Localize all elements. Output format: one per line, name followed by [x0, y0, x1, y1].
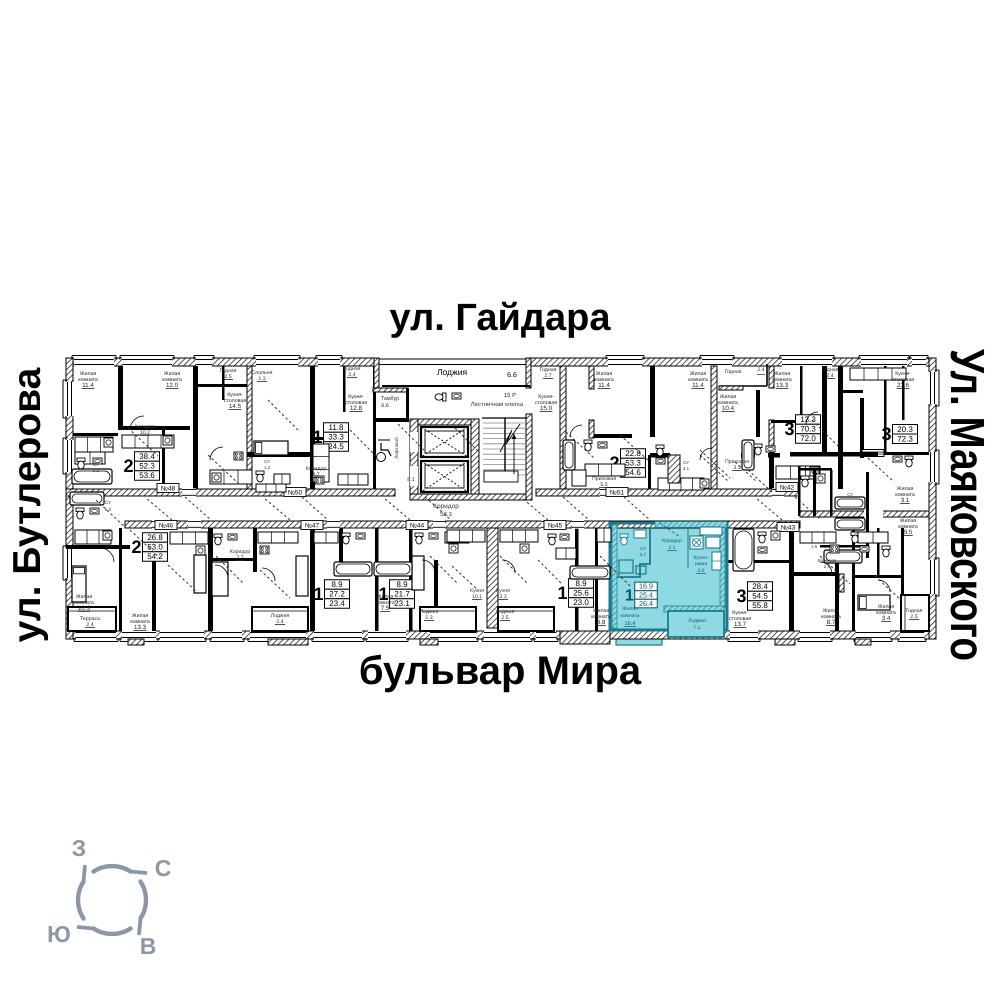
svg-text:25.6: 25.6	[573, 589, 589, 598]
svg-text:Ул. Маяковского: Ул. Маяковского	[940, 349, 993, 661]
svg-text:СУ: СУ	[640, 546, 646, 551]
svg-text:21.6: 21.6	[897, 382, 910, 389]
svg-text:№47: №47	[305, 523, 320, 530]
svg-text:38.4: 38.4	[139, 452, 155, 461]
svg-text:Лестничная клетка: Лестничная клетка	[471, 401, 524, 408]
svg-text:2.1: 2.1	[669, 545, 676, 551]
svg-text:3.0: 3.0	[698, 568, 705, 574]
svg-text:Лифтовой: Лифтовой	[394, 437, 399, 459]
svg-text:СУ: СУ	[105, 500, 111, 505]
svg-text:6.6: 6.6	[507, 372, 517, 379]
svg-text:26.4: 26.4	[639, 599, 653, 608]
svg-text:3.1: 3.1	[901, 497, 910, 504]
svg-text:2.4: 2.4	[757, 367, 764, 373]
svg-text:13.3: 13.3	[134, 624, 147, 631]
svg-text:10.3: 10.3	[78, 605, 91, 612]
svg-text:1: 1	[625, 586, 634, 604]
svg-text:8.9: 8.9	[331, 580, 343, 589]
svg-text:53.3: 53.3	[625, 459, 641, 468]
svg-text:1: 1	[557, 583, 567, 603]
svg-text:11.8: 11.8	[329, 423, 345, 432]
svg-text:бульвар Мира: бульвар Мира	[359, 649, 642, 693]
svg-text:З: З	[72, 835, 86, 861]
svg-text:8.9: 8.9	[396, 580, 408, 589]
svg-text:26.8: 26.8	[147, 533, 163, 542]
svg-text:53.0: 53.0	[147, 543, 163, 552]
svg-text:12.8: 12.8	[350, 405, 363, 412]
svg-text:3.7: 3.7	[640, 552, 647, 557]
svg-text:27.2: 27.2	[329, 590, 345, 599]
svg-text:2: 2	[131, 537, 141, 557]
svg-text:СУ: СУ	[847, 492, 853, 497]
svg-text:28.4: 28.4	[752, 582, 768, 591]
svg-text:13.3: 13.3	[776, 382, 789, 389]
svg-text:8.1: 8.1	[407, 477, 415, 483]
svg-text:3.2: 3.2	[93, 468, 100, 473]
svg-text:55.8: 55.8	[752, 601, 768, 610]
svg-text:Ю: Ю	[47, 921, 71, 947]
svg-text:2: 2	[123, 456, 133, 476]
svg-text:11.4: 11.4	[692, 382, 704, 389]
svg-text:№50: №50	[288, 490, 303, 497]
svg-text:11.4: 11.4	[82, 382, 94, 389]
svg-text:3: 3	[736, 586, 746, 606]
svg-text:ул. Бутлерова: ул. Бутлерова	[6, 367, 49, 642]
svg-text:6.6: 6.6	[381, 403, 389, 409]
svg-text:комната: комната	[621, 613, 640, 619]
svg-text:8.8: 8.8	[597, 619, 606, 626]
svg-text:№44: №44	[410, 523, 425, 530]
svg-text:4.1: 4.1	[683, 466, 690, 471]
svg-text:23.1: 23.1	[394, 599, 410, 608]
svg-text:№51: №51	[610, 490, 625, 497]
svg-text:21.7: 21.7	[394, 590, 410, 599]
svg-text:24.5: 24.5	[328, 442, 344, 451]
svg-text:10.4: 10.4	[722, 405, 735, 412]
svg-text:СУ: СУ	[683, 460, 689, 465]
svg-text:54.2: 54.2	[147, 552, 163, 561]
svg-text:53.6: 53.6	[139, 471, 155, 480]
svg-text:1: 1	[313, 584, 323, 604]
svg-text:8.9: 8.9	[575, 579, 587, 588]
svg-text:11.4: 11.4	[598, 382, 610, 389]
svg-text:Тамбур: Тамбур	[381, 396, 399, 402]
svg-text:52.3: 52.3	[139, 462, 155, 471]
svg-text:3: 3	[784, 419, 794, 439]
svg-text:СУ: СУ	[93, 462, 99, 467]
svg-text:53.3: 53.3	[440, 511, 452, 518]
svg-text:15 Р: 15 Р	[504, 392, 516, 399]
svg-text:12.0: 12.0	[166, 382, 179, 389]
svg-text:33.3: 33.3	[328, 433, 344, 442]
svg-text:72.0: 72.0	[800, 434, 816, 443]
svg-text:№48: №48	[161, 486, 176, 493]
svg-text:№45: №45	[548, 523, 563, 530]
svg-text:7.5: 7.5	[381, 605, 390, 612]
svg-text:С: С	[155, 855, 172, 881]
svg-text:15.0: 15.0	[540, 405, 553, 412]
svg-text:8.7: 8.7	[827, 619, 836, 626]
svg-text:1.2: 1.2	[264, 465, 271, 470]
svg-text:ул. Гайдара: ул. Гайдара	[389, 297, 611, 339]
svg-text:72.3: 72.3	[897, 434, 913, 443]
svg-text:23.4: 23.4	[329, 599, 345, 608]
svg-text:№42: №42	[780, 485, 795, 492]
svg-text:13.7: 13.7	[734, 621, 747, 628]
svg-text:54.6: 54.6	[625, 468, 641, 477]
svg-text:Коридор: Коридор	[433, 503, 459, 510]
svg-text:1.6: 1.6	[811, 544, 818, 549]
svg-text:Коридор: Коридор	[662, 538, 682, 544]
svg-text:70.3: 70.3	[800, 425, 816, 434]
svg-text:СУ: СУ	[264, 459, 270, 464]
svg-text:23.0: 23.0	[573, 598, 589, 607]
svg-text:22.8: 22.8	[625, 449, 641, 458]
svg-text:Лоджия: Лоджия	[688, 618, 706, 624]
svg-text:В: В	[140, 933, 157, 959]
svg-text:20.3: 20.3	[897, 425, 913, 434]
svg-text:Годная: Годная	[725, 369, 742, 375]
svg-text:3.4: 3.4	[882, 615, 891, 622]
svg-text:№46: №46	[159, 523, 174, 530]
svg-text:16.4: 16.4	[625, 621, 636, 627]
svg-text:9.5: 9.5	[904, 529, 913, 536]
svg-text:7.1: 7.1	[694, 625, 701, 631]
svg-text:3: 3	[881, 424, 891, 444]
svg-text:№43: №43	[781, 525, 796, 532]
svg-text:14.5: 14.5	[229, 403, 242, 410]
svg-text:54.5: 54.5	[752, 592, 768, 601]
svg-text:Лоджия: Лоджия	[437, 367, 468, 377]
svg-text:ниша: ниша	[695, 561, 708, 567]
